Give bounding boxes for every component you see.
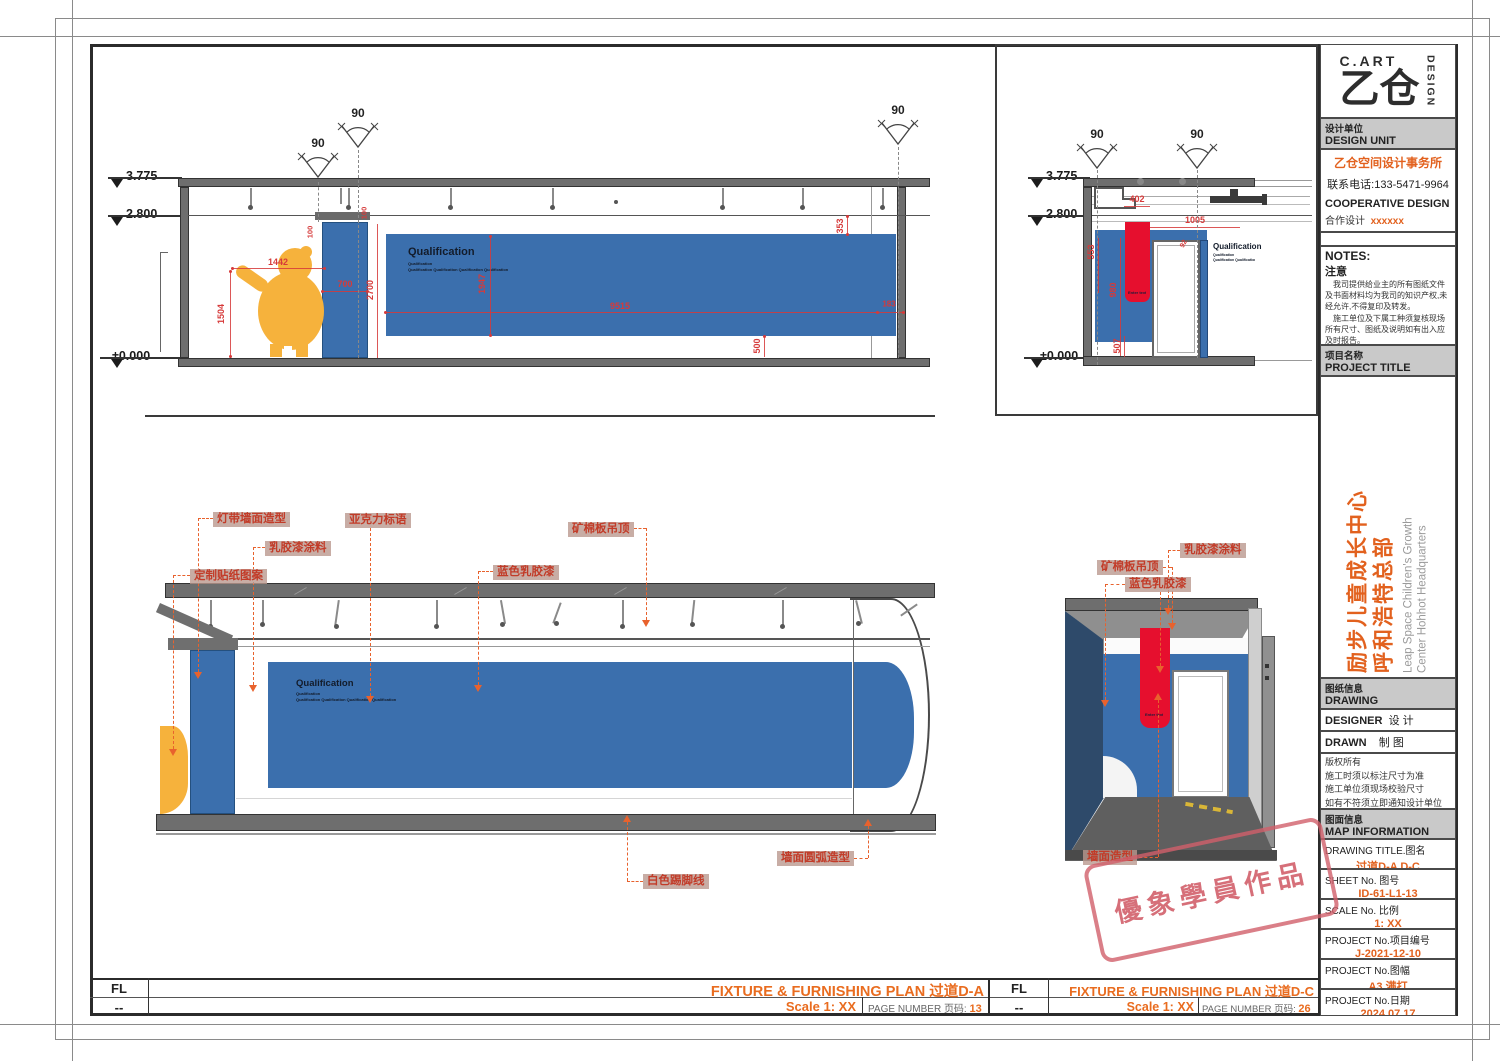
- level-text: 2.800: [126, 207, 157, 221]
- hanger-icon: [552, 188, 554, 206]
- leader-arrow-icon: [1168, 623, 1176, 630]
- footer-divider: [148, 978, 149, 1016]
- coop-en: COOPERATIVE DESIGN: [1325, 198, 1451, 210]
- ceiling-slab: [178, 178, 930, 187]
- panel-detail: [1265, 664, 1269, 668]
- floor-slab: [178, 358, 930, 367]
- section-line: [1097, 170, 1098, 365]
- view-title: FIXTURE & FURNISHING PLAN 过道D-C: [1052, 981, 1314, 1000]
- ceiling-band: [165, 583, 935, 598]
- notes-paragraph: 我司提供给业主的所有图纸文件及书面材料均为我司的知识产权,未经允许,不得复印及转…: [1325, 279, 1451, 313]
- field-label: DRAWING TITLE.图名: [1325, 842, 1451, 857]
- section-line: [898, 147, 899, 358]
- page-number-value: 13: [970, 1003, 982, 1015]
- leader-line: [370, 528, 371, 696]
- leader-arrow-icon: [1101, 700, 1109, 707]
- sign-subtitle: Qualification Qualification: [1213, 258, 1255, 262]
- field-label: SHEET No. 图号: [1325, 872, 1451, 887]
- dim-text: 100: [306, 226, 315, 239]
- leader-line: [1158, 700, 1159, 857]
- hanger-dot-icon: [800, 205, 805, 210]
- dim-line: [386, 312, 878, 313]
- column-cap: [168, 638, 238, 650]
- leader-line: [1160, 592, 1161, 666]
- leader-line: [854, 858, 868, 859]
- dim-text: 9515: [610, 301, 630, 311]
- duct-pipe: [1210, 196, 1264, 203]
- soffit-band: [196, 638, 930, 640]
- sign-enter-text: Enter text: [1145, 712, 1163, 717]
- level-text: 3.775: [126, 169, 157, 183]
- field-value: ID-61-L1-13: [1325, 888, 1451, 899]
- leader-line: [253, 547, 265, 548]
- dim-text: 1442: [268, 257, 288, 267]
- dim-text: 1005: [1185, 215, 1205, 225]
- notes-en: NOTES:: [1325, 249, 1451, 263]
- field-value: J-2021-12-10: [1325, 948, 1451, 959]
- camera-cone-icon: [335, 120, 381, 150]
- level-text: 3.775: [1046, 169, 1077, 183]
- material-label: 墙面圆弧造型: [777, 851, 854, 866]
- copyright-line: 版权所有: [1325, 756, 1451, 770]
- pendant-light-icon: [210, 600, 212, 626]
- drawn-cn: 制 图: [1379, 737, 1404, 749]
- pendant-light-icon: [622, 600, 624, 626]
- footer-fl: FL: [990, 981, 1048, 996]
- left-wall: [1083, 187, 1092, 366]
- leader-line: [1163, 567, 1172, 568]
- sign-subtitle: Qualification: [296, 691, 320, 696]
- hanger-dot-icon: [880, 205, 885, 210]
- footer-fl: FL: [90, 981, 148, 996]
- band-en: DESIGN UNIT: [1325, 135, 1451, 147]
- field-label: PROJECT No.项目编号: [1325, 932, 1451, 947]
- band-en: PROJECT TITLE: [1325, 362, 1451, 374]
- hanger-icon: [450, 188, 452, 206]
- logo-cell: C.ART 乙仓 DESIGN: [1320, 44, 1456, 118]
- band-cn: 图面信息: [1325, 812, 1451, 826]
- view-scale: Scale 1: XX: [1052, 1000, 1194, 1014]
- soffit-band: [196, 646, 930, 647]
- material-label: 乳胶漆涂料: [265, 541, 331, 556]
- hanger-dot-icon: [346, 205, 351, 210]
- ceiling-slab: [1083, 178, 1255, 187]
- project-no-row: PROJECT No.项目编号 J-2021-12-10: [1320, 929, 1456, 959]
- material-label: 乳胶漆涂料: [1180, 543, 1246, 558]
- bear-foot: [270, 344, 282, 357]
- level-marker-icon: [1031, 179, 1043, 188]
- designer-cn: 设 计: [1389, 715, 1414, 727]
- sign-title: Qualification: [1213, 242, 1261, 252]
- floor-band: [156, 814, 936, 831]
- leader-arrow-icon: [194, 672, 202, 679]
- level-marker-icon: [1031, 359, 1043, 368]
- dim-line: [764, 336, 765, 357]
- dim-line: [232, 268, 326, 269]
- footer-dash: --: [990, 1000, 1048, 1015]
- level-text: ±0.000: [1040, 349, 1078, 363]
- downlight-icon: [1137, 178, 1144, 185]
- view-angle-marker: 90: [875, 103, 921, 152]
- leader-line: [198, 518, 213, 519]
- sheet-no-row: SHEET No. 图号 ID-61-L1-13: [1320, 869, 1456, 899]
- floor-edge: [156, 833, 936, 835]
- angle-value: 90: [875, 103, 921, 117]
- leader-line: [198, 518, 199, 672]
- field-label: SCALE No. 比例: [1325, 902, 1451, 917]
- firm-name: 乙仓空间设计事务所: [1325, 154, 1451, 171]
- project-title-en: Leap Space Children's Growth: [1401, 381, 1416, 673]
- dim-line: [1124, 336, 1125, 357]
- designer-row: DESIGNER 设 计: [1320, 709, 1456, 731]
- material-label: 白色踢脚线: [643, 874, 709, 889]
- hanger-icon: [250, 188, 252, 206]
- notes-cn: 注意: [1325, 263, 1451, 279]
- hanger-icon: [348, 188, 350, 206]
- sign-title: Qualification: [296, 678, 354, 689]
- leader-line: [634, 528, 646, 529]
- angle-value: 90: [335, 106, 381, 120]
- leader-line: [646, 528, 647, 620]
- project-title-cn: 励步儿童成长中心: [1345, 381, 1371, 673]
- field-value: A3 满打: [1325, 978, 1451, 989]
- view-title: FIXTURE & FURNISHING PLAN 过道D-A: [500, 980, 984, 1001]
- leader-line: [868, 826, 869, 858]
- dim-text: 402: [1129, 194, 1144, 204]
- dim-text: 353: [835, 218, 845, 233]
- bracket-line: [160, 252, 161, 352]
- camera-cone-icon: [1074, 141, 1120, 171]
- duct-tee: [1230, 189, 1238, 196]
- page-number: PAGE NUMBER 页码: 13: [868, 1000, 982, 1015]
- view-angle-marker: 90: [335, 106, 381, 155]
- copyright-line: 如有不符须立即通知设计单位: [1325, 797, 1451, 810]
- leader-line: [173, 575, 174, 749]
- view-angle-marker: 90: [1074, 127, 1120, 176]
- sign-subtitle: Qualification Qualification Qualificatio…: [408, 267, 548, 272]
- hanger-dot-icon: [550, 205, 555, 210]
- leader-arrow-icon: [623, 815, 631, 822]
- leader-line: [627, 822, 628, 881]
- camera-cone-icon: [1174, 141, 1220, 171]
- material-label: 蓝色乳胶漆: [493, 565, 559, 580]
- dim-text: 100: [360, 207, 369, 220]
- dim-line: [322, 291, 368, 292]
- band-en: DRAWING INFORMATION: [1325, 695, 1451, 709]
- view-scale: Scale 1: XX: [600, 999, 856, 1014]
- dim-text: 980: [1108, 282, 1118, 297]
- floor-ext-line: [1255, 360, 1312, 361]
- band-cn: 图纸信息: [1325, 681, 1451, 695]
- bracket-line: [160, 252, 168, 253]
- project-title-rotated: 励步儿童成长中心 呼和浩特总部 Leap Space Children's Gr…: [1345, 381, 1430, 673]
- bear-ear: [300, 246, 312, 258]
- material-label: 亚克力标语: [345, 513, 411, 528]
- ceiling-2800-line: [188, 215, 930, 216]
- dim-text: 500: [752, 338, 762, 353]
- leader-line: [478, 571, 479, 685]
- panel-detail: [1265, 676, 1269, 680]
- hanger-dot-icon: [448, 205, 453, 210]
- project-title-band: 项目名称 PROJECT TITLE: [1320, 345, 1456, 376]
- angle-value: 90: [1174, 127, 1220, 141]
- designer-label: DESIGNER: [1325, 715, 1382, 727]
- format-row: PROJECT No.图幅 A3 满打: [1320, 959, 1456, 989]
- field-value: 过道D-A D-C: [1325, 858, 1451, 869]
- leader-line: [1105, 584, 1125, 585]
- slab-ext-line: [1255, 186, 1312, 187]
- material-label: 矿棉板吊顶: [1097, 560, 1163, 575]
- section-line: [1197, 170, 1198, 358]
- leader-line: [1168, 550, 1180, 551]
- leader-arrow-icon: [1164, 608, 1172, 615]
- dim-line: [1124, 206, 1150, 207]
- drawn-row: DRAWN 制 图: [1320, 731, 1456, 753]
- field-label: PROJECT No.日期: [1325, 992, 1451, 1007]
- border-line: [0, 1024, 1500, 1025]
- duct-cap: [1262, 194, 1267, 205]
- left-wall: [180, 187, 189, 358]
- drawn-label: DRAWN: [1325, 737, 1367, 749]
- dim-line: [490, 236, 491, 336]
- copyright-line: 施工时须以标注尺寸为准: [1325, 770, 1451, 784]
- field-value: 2024.07.17: [1325, 1008, 1451, 1016]
- leader-line: [1105, 584, 1106, 700]
- hanger-icon: [722, 188, 724, 206]
- sign-subtitle: Qualification: [408, 261, 432, 266]
- ceiling-bulkhead: [1094, 187, 1124, 209]
- dim-text: 700: [337, 279, 352, 289]
- level-marker-icon: [111, 179, 123, 188]
- leader-arrow-icon: [474, 685, 482, 692]
- notes-paragraph: 施工单位及下属工种须复核现场所有尺寸、图纸及说明如有出入应及时报告。: [1325, 313, 1451, 345]
- drawing-title-row: DRAWING TITLE.图名 过道D-A D-C: [1320, 839, 1456, 869]
- dim-text: 1947: [477, 274, 487, 294]
- downlight-icon: [1179, 178, 1186, 185]
- skirting-line: [236, 798, 852, 799]
- footer-divider: [1048, 978, 1049, 1016]
- wall-corner-line: [853, 600, 854, 830]
- border-line: [0, 36, 1500, 37]
- section-line: [318, 182, 319, 222]
- leader-line: [627, 881, 643, 882]
- leader-arrow-icon: [366, 696, 374, 703]
- ceiling-band: [1065, 598, 1258, 611]
- curved-blue-panel: [854, 662, 914, 788]
- sign-subtitle: Qualification: [1213, 253, 1234, 257]
- sign-title: Qualification: [408, 246, 475, 259]
- pendant-light-icon: [262, 600, 264, 624]
- door-inner-frame: [1157, 245, 1195, 353]
- bear-foot: [296, 344, 308, 357]
- design-unit-info: 乙仓空间设计事务所 联系电话:133-5471-9964 COOPERATIVE…: [1320, 149, 1456, 232]
- dim-line: [1150, 227, 1240, 228]
- drawing-info-band: 图纸信息 DRAWING INFORMATION: [1320, 678, 1456, 709]
- leader-arrow-icon: [864, 819, 872, 826]
- leader-line: [253, 547, 254, 685]
- hanger-dot-icon: [614, 200, 618, 204]
- band-cn: 设计单位: [1325, 121, 1451, 135]
- pendant-light-icon: [436, 600, 438, 626]
- slab-ext-line: [1255, 180, 1312, 181]
- bear-notch: [284, 346, 292, 358]
- ceiling-line: [1092, 196, 1310, 197]
- dim-line: [1098, 238, 1099, 293]
- empty-cell: [1320, 232, 1456, 246]
- leader-line: [1172, 567, 1173, 623]
- page-number-label: PAGE NUMBER 页码:: [1202, 1004, 1296, 1015]
- page-number: PAGE NUMBER 页码: 26: [1202, 1001, 1311, 1015]
- dim-text: 183: [882, 300, 895, 309]
- door-inner-frame: [1178, 676, 1223, 792]
- material-label: 定制贴纸图案: [190, 569, 267, 584]
- hanger-dot-icon: [248, 205, 253, 210]
- border-line: [72, 0, 73, 1061]
- material-label: 灯带墙面造型: [213, 512, 290, 527]
- camera-cone-icon: [875, 117, 921, 147]
- blue-sign-panel: [268, 662, 852, 788]
- field-label: PROJECT No.图幅: [1325, 962, 1451, 977]
- dim-line: [230, 272, 231, 358]
- material-label: 矿棉板吊顶: [568, 522, 634, 537]
- project-title-cell: 励步儿童成长中心 呼和浩特总部 Leap Space Children's Gr…: [1320, 376, 1456, 678]
- coop-value: xxxxxx: [1371, 216, 1404, 227]
- dim-line: [377, 224, 378, 358]
- phone: 联系电话:133-5471-9964: [1325, 176, 1451, 192]
- leader-arrow-icon: [1156, 666, 1164, 673]
- copyright-line: 施工单位须现场校验尺寸: [1325, 783, 1451, 797]
- hanger-icon: [802, 188, 804, 206]
- scale-no-row: SCALE No. 比例 1: XX: [1320, 899, 1456, 929]
- leader-line: [478, 571, 493, 572]
- drawing-sheet: 3.775 2.800 ±0.000 Qualification Qualifi…: [0, 0, 1500, 1061]
- section-line: [358, 150, 359, 358]
- logo-glyph: 乙仓: [1340, 69, 1420, 109]
- field-value: 1: XX: [1325, 918, 1451, 929]
- sign-enter-text: Enter text: [1128, 290, 1146, 295]
- leader-arrow-icon: [169, 749, 177, 756]
- level-marker-icon: [111, 217, 123, 226]
- date-row: PROJECT No.日期 2024.07.17: [1320, 989, 1456, 1016]
- leader-arrow-icon: [1154, 693, 1162, 700]
- leader-line: [173, 575, 190, 576]
- level-marker-icon: [111, 359, 123, 368]
- page-number-label: PAGE NUMBER 页码:: [868, 1004, 967, 1015]
- hanger-icon: [340, 188, 342, 204]
- coop-cn: 合作设计 xxxxxx: [1325, 212, 1451, 227]
- footer-dash: --: [90, 1000, 148, 1015]
- pendant-light-icon: [782, 600, 784, 626]
- leader-arrow-icon: [249, 685, 257, 692]
- material-label: 蓝色乳胶漆: [1125, 577, 1191, 592]
- logo-design-text: DESIGN: [1425, 55, 1437, 107]
- level-marker-icon: [1031, 217, 1043, 226]
- design-unit-band: 设计单位 DESIGN UNIT: [1320, 118, 1456, 149]
- dim-text: 553: [1086, 244, 1096, 259]
- view-separator: [145, 415, 935, 417]
- view-angle-marker: 90: [1174, 127, 1220, 176]
- project-title-en: Center Hohhot Headquarters: [1416, 381, 1431, 673]
- angle-value: 90: [1074, 127, 1120, 141]
- hanger-dot-icon: [720, 205, 725, 210]
- hanger-icon: [882, 188, 884, 206]
- band-cn: 项目名称: [1325, 348, 1451, 362]
- bear-body: [258, 272, 324, 350]
- border-line: [1472, 0, 1473, 1061]
- dim-text: 1504: [216, 304, 226, 324]
- level-text: 2.800: [1046, 207, 1077, 221]
- leader-arrow-icon: [642, 620, 650, 627]
- notes-cell: NOTES: 注意 我司提供给业主的所有图纸文件及书面材料均为我司的知识产权,未…: [1320, 246, 1456, 345]
- dim-text: 507: [1112, 338, 1122, 353]
- blue-strip: [1200, 240, 1208, 358]
- dim-line: [878, 312, 905, 313]
- copyright-cell: 版权所有 施工时须以标注尺寸为准 施工单位须现场校验尺寸 如有不符须立即通知设计…: [1320, 753, 1456, 809]
- page-number-value: 26: [1298, 1003, 1310, 1015]
- band-en: MAP INFORMATION: [1325, 826, 1451, 838]
- map-info-band: 图面信息 MAP INFORMATION: [1320, 809, 1456, 839]
- project-title-cn: 呼和浩特总部: [1372, 381, 1398, 673]
